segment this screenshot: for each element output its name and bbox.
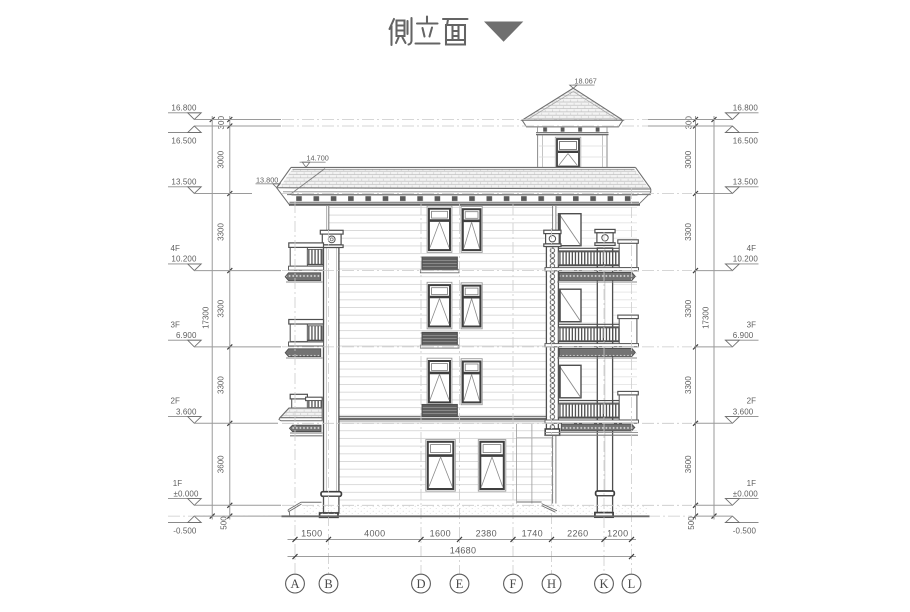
svg-text:3300: 3300 [684,376,693,394]
svg-text:B: B [324,577,332,591]
svg-text:4F: 4F [171,244,181,253]
svg-text:±0.000: ±0.000 [173,489,198,498]
svg-text:300: 300 [217,115,226,129]
svg-text:K: K [599,577,608,591]
svg-text:6.900: 6.900 [176,331,197,340]
svg-text:3F: 3F [747,320,757,329]
svg-text:1740: 1740 [522,528,543,538]
svg-text:3300: 3300 [216,223,225,241]
svg-text:3600: 3600 [684,455,693,473]
svg-text:3300: 3300 [684,299,693,317]
svg-text:13.500: 13.500 [171,178,197,187]
svg-text:500: 500 [687,516,696,530]
svg-text:-0.500: -0.500 [733,527,757,536]
svg-text:3300: 3300 [216,299,225,317]
svg-text:4000: 4000 [364,528,385,538]
svg-text:10.200: 10.200 [733,255,759,264]
svg-text:300: 300 [684,115,693,129]
svg-text:16.500: 16.500 [171,137,197,146]
svg-text:16.500: 16.500 [733,137,759,146]
svg-text:1F: 1F [747,479,757,488]
svg-text:16.800: 16.800 [171,104,197,113]
svg-text:13.800: 13.800 [256,175,278,184]
svg-text:2F: 2F [747,397,757,406]
svg-text:H: H [547,577,556,591]
svg-text:3000: 3000 [216,150,225,168]
svg-text:1600: 1600 [430,528,451,538]
svg-text:2260: 2260 [567,528,588,538]
svg-text:A: A [290,577,299,591]
svg-text:17300: 17300 [701,306,710,329]
svg-text:14.700: 14.700 [307,154,329,163]
svg-text:3300: 3300 [684,223,693,241]
svg-text:2F: 2F [171,397,181,406]
svg-text:500: 500 [220,516,229,530]
svg-text:±0.000: ±0.000 [733,489,758,498]
svg-text:6.900: 6.900 [733,331,754,340]
svg-text:3F: 3F [171,320,181,329]
svg-text:E: E [456,577,464,591]
svg-text:F: F [510,577,517,591]
svg-text:14680: 14680 [450,546,477,556]
svg-text:1500: 1500 [301,528,322,538]
svg-text:1200: 1200 [607,528,628,538]
svg-text:18.067: 18.067 [575,76,597,85]
svg-text:2380: 2380 [476,528,497,538]
svg-text:16.800: 16.800 [733,104,759,113]
svg-text:10.200: 10.200 [171,255,197,264]
svg-text:L: L [628,577,636,591]
svg-text:3300: 3300 [216,376,225,394]
svg-text:1F: 1F [173,479,183,488]
svg-text:D: D [416,577,425,591]
svg-text:-0.500: -0.500 [173,527,197,536]
svg-text:17300: 17300 [201,306,210,329]
svg-text:3000: 3000 [684,150,693,168]
svg-text:3600: 3600 [216,455,225,473]
svg-text:4F: 4F [747,244,757,253]
svg-text:13.500: 13.500 [733,178,759,187]
svg-text:3.600: 3.600 [176,407,197,416]
svg-text:3.600: 3.600 [733,407,754,416]
